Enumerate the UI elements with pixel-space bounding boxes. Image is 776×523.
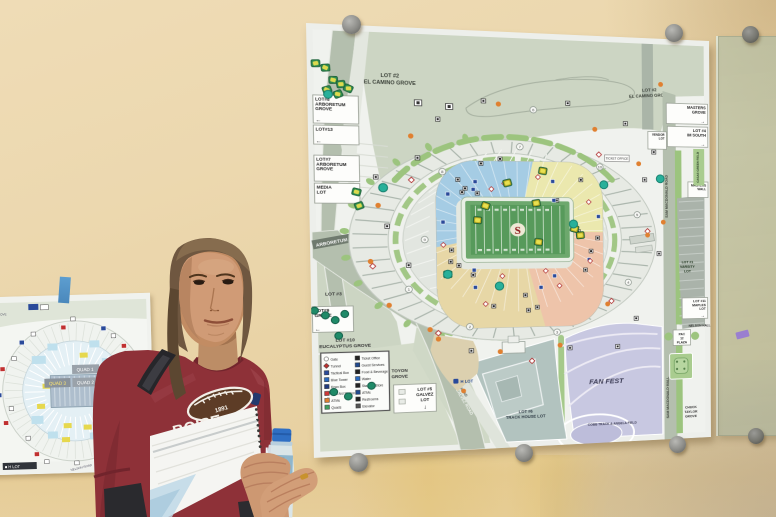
svg-text:FAN FEST: FAN FEST xyxy=(589,377,624,386)
svg-text:GROVE: GROVE xyxy=(315,106,332,112)
svg-text:CASAS GREEN FIELD: CASAS GREEN FIELD xyxy=(696,152,699,183)
svg-text:←: ← xyxy=(316,139,322,145)
svg-text:PLAZA: PLAZA xyxy=(677,341,688,345)
svg-text:TICKET OFFICE: TICKET OFFICE xyxy=(606,157,629,161)
svg-text:←: ← xyxy=(315,118,321,124)
svg-text:LOT#13: LOT#13 xyxy=(316,127,334,133)
svg-text:Elevator: Elevator xyxy=(362,404,375,408)
svg-text:QUAD 3: QUAD 3 xyxy=(49,381,67,386)
svg-text:Water: Water xyxy=(362,377,372,381)
svg-text:LOT: LOT xyxy=(659,137,666,141)
svg-text:GALVEZ: GALVEZ xyxy=(416,392,433,397)
svg-text:H LOT: H LOT xyxy=(460,379,473,384)
svg-text:LOT: LOT xyxy=(684,269,691,273)
svg-text:LOT #5: LOT #5 xyxy=(417,387,432,392)
svg-text:SAM MACDONALD MALL: SAM MACDONALD MALL xyxy=(666,376,670,418)
svg-text:ATMs: ATMs xyxy=(362,391,371,395)
svg-text:LOT: LOT xyxy=(317,190,327,196)
svg-text:↓: ↓ xyxy=(423,404,426,410)
svg-text:GROVE: GROVE xyxy=(316,167,333,173)
svg-text:Guest Services: Guest Services xyxy=(362,363,385,367)
svg-text:WALL: WALL xyxy=(697,188,706,191)
svg-text:GROVE: GROVE xyxy=(685,414,697,419)
svg-text:10: 10 xyxy=(598,165,603,169)
svg-text:Ticket Office: Ticket Office xyxy=(361,356,380,360)
svg-text:Restrooms: Restrooms xyxy=(362,397,379,401)
svg-text:→: → xyxy=(700,120,705,125)
svg-text:TOYON: TOYON xyxy=(391,368,408,374)
svg-text:NELSON HALL: NELSON HALL xyxy=(689,324,711,328)
svg-text:IM SOUTH: IM SOUTH xyxy=(687,133,706,138)
svg-text:LOT: LOT xyxy=(699,306,706,310)
svg-text:→: → xyxy=(700,314,705,319)
svg-text:S: S xyxy=(515,224,521,236)
svg-text:LOT #2: LOT #2 xyxy=(380,73,399,79)
svg-text:PAC: PAC xyxy=(679,333,686,336)
svg-text:LOT #6: LOT #6 xyxy=(519,409,533,414)
svg-text:SAM MACDONALD ROAD: SAM MACDONALD ROAD xyxy=(664,175,668,218)
svg-text:LOT: LOT xyxy=(421,397,430,402)
svg-text:■ H LOT: ■ H LOT xyxy=(5,464,21,469)
svg-text:GROVE: GROVE xyxy=(692,110,706,115)
svg-text:→: → xyxy=(700,143,705,148)
svg-text:GROVE: GROVE xyxy=(391,374,408,380)
svg-text:12: 12 xyxy=(680,337,683,340)
